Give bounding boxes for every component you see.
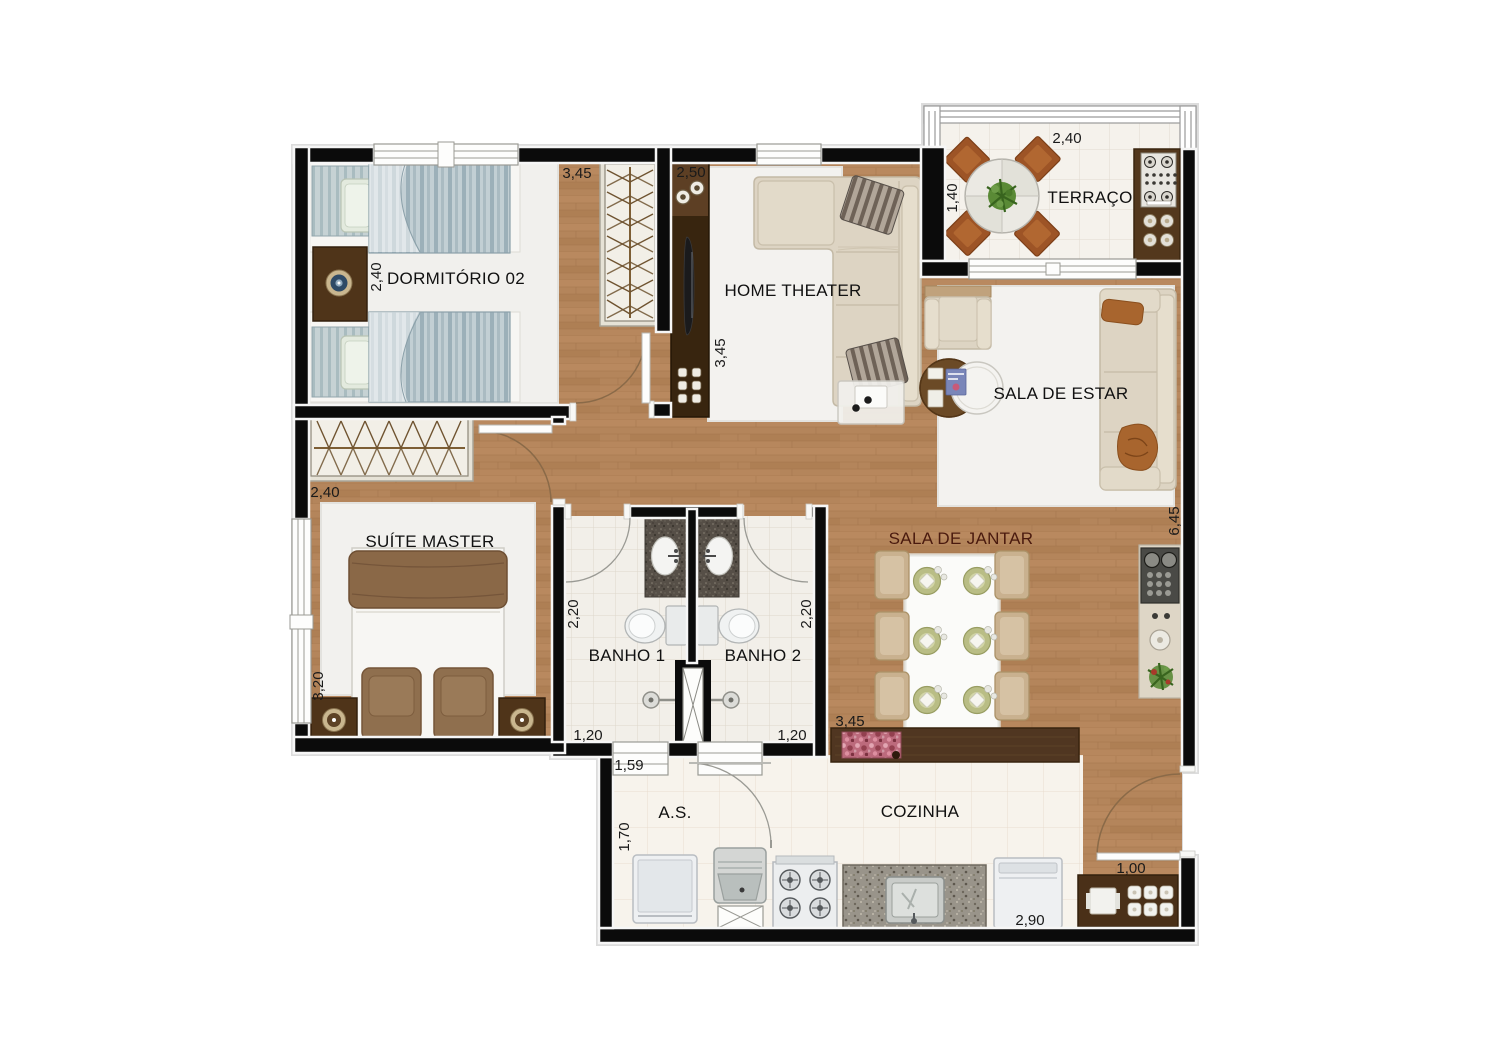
svg-text:1,59: 1,59 <box>614 757 643 774</box>
svg-text:2,40: 2,40 <box>310 484 339 501</box>
svg-text:1,40: 1,40 <box>944 183 961 212</box>
svg-text:DORMITÓRIO 02: DORMITÓRIO 02 <box>387 269 525 288</box>
svg-text:3,45: 3,45 <box>835 713 864 730</box>
svg-text:2,90: 2,90 <box>1015 912 1044 929</box>
svg-text:SALA DE ESTAR: SALA DE ESTAR <box>994 384 1129 403</box>
svg-text:1,20: 1,20 <box>573 727 602 744</box>
svg-text:SUÍTE MASTER: SUÍTE MASTER <box>365 532 494 551</box>
svg-text:2,40: 2,40 <box>368 262 385 291</box>
svg-text:3,45: 3,45 <box>562 165 591 182</box>
svg-text:2,40: 2,40 <box>1052 130 1081 147</box>
svg-text:1,00: 1,00 <box>1116 860 1145 877</box>
svg-text:BANHO 2: BANHO 2 <box>725 646 802 665</box>
svg-text:6,45: 6,45 <box>1166 506 1183 535</box>
svg-text:2,20: 2,20 <box>798 599 815 628</box>
svg-text:1,70: 1,70 <box>616 822 633 851</box>
svg-text:3,20: 3,20 <box>310 671 327 700</box>
svg-text:TERRAÇO: TERRAÇO <box>1047 188 1132 207</box>
svg-text:A.S.: A.S. <box>658 803 691 822</box>
svg-text:2,50: 2,50 <box>676 164 705 181</box>
svg-text:HOME THEATER: HOME THEATER <box>724 281 861 300</box>
svg-text:1,20: 1,20 <box>777 727 806 744</box>
svg-text:3,45: 3,45 <box>712 338 729 367</box>
svg-text:2,20: 2,20 <box>565 599 582 628</box>
svg-text:SALA DE JANTAR: SALA DE JANTAR <box>889 529 1034 548</box>
svg-text:COZINHA: COZINHA <box>881 802 960 821</box>
svg-text:BANHO 1: BANHO 1 <box>589 646 666 665</box>
